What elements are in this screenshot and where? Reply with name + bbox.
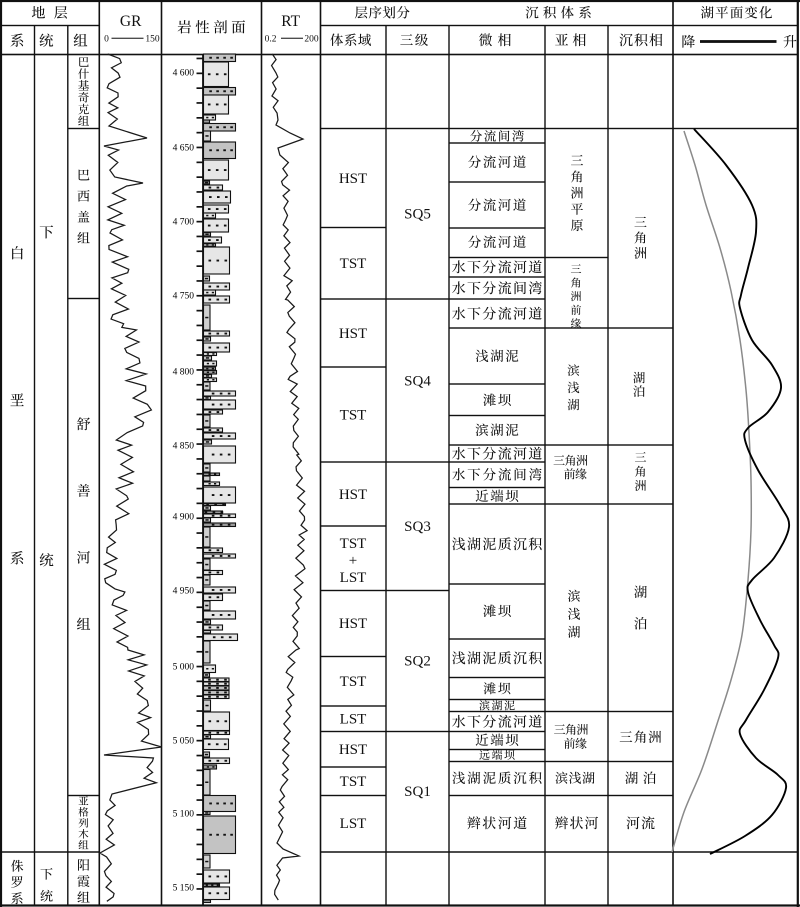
svg-text:4 850: 4 850	[173, 441, 195, 451]
svg-text:SQ1: SQ1	[404, 784, 431, 800]
svg-text:4 650: 4 650	[173, 143, 195, 153]
svg-text:0: 0	[104, 35, 109, 45]
svg-text:TST: TST	[340, 408, 367, 424]
svg-text:+: +	[349, 553, 357, 569]
svg-text:5 000: 5 000	[173, 662, 195, 672]
svg-text:LST: LST	[340, 712, 367, 728]
svg-text:SQ5: SQ5	[404, 207, 431, 223]
svg-text:RT: RT	[281, 13, 300, 30]
svg-text:TST: TST	[340, 774, 367, 790]
svg-text:LST: LST	[340, 816, 367, 832]
svg-text:HST: HST	[339, 616, 367, 632]
svg-text:200: 200	[304, 35, 319, 45]
svg-text:4 800: 4 800	[173, 367, 195, 377]
svg-text:5 050: 5 050	[173, 736, 195, 746]
svg-text:HST: HST	[339, 326, 367, 342]
svg-text:LST: LST	[340, 570, 367, 586]
svg-text:SQ4: SQ4	[404, 374, 431, 390]
svg-text:SQ2: SQ2	[404, 654, 431, 670]
svg-text:0.2: 0.2	[265, 35, 277, 45]
svg-text:TST: TST	[340, 256, 367, 272]
svg-text:4 950: 4 950	[173, 586, 195, 596]
svg-text:SQ3: SQ3	[404, 519, 431, 535]
svg-text:HST: HST	[339, 487, 367, 503]
svg-text:5 150: 5 150	[173, 883, 195, 893]
svg-text:4 600: 4 600	[173, 68, 195, 78]
svg-text:TST: TST	[340, 536, 367, 552]
svg-text:4 750: 4 750	[173, 291, 195, 301]
svg-text:GR: GR	[120, 13, 142, 30]
svg-text:HST: HST	[339, 171, 367, 187]
svg-text:HST: HST	[339, 742, 367, 758]
svg-text:4 700: 4 700	[173, 217, 195, 227]
svg-text:TST: TST	[340, 674, 367, 690]
svg-text:5 100: 5 100	[173, 809, 195, 819]
svg-text:4 900: 4 900	[173, 512, 195, 522]
svg-text:150: 150	[145, 35, 160, 45]
